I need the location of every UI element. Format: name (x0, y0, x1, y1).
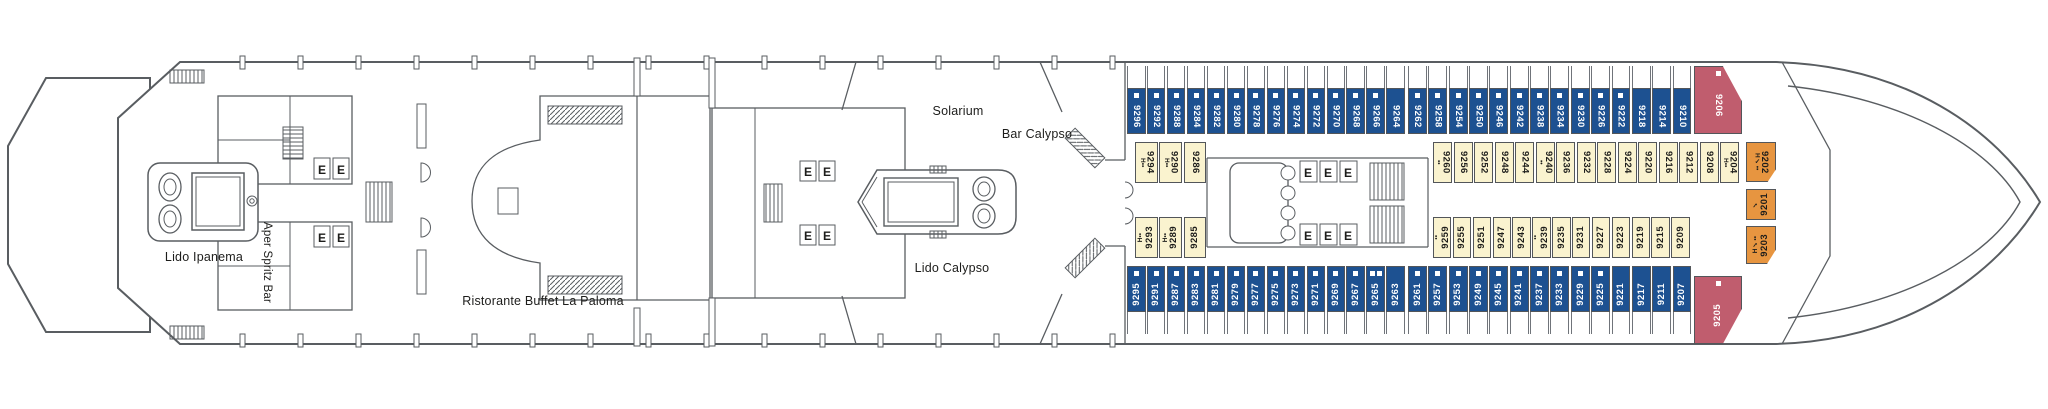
cabin-9243[interactable]: 9243 (1512, 217, 1530, 258)
deck-tick (878, 334, 883, 347)
balcony (1530, 312, 1549, 334)
cabin-number: 9212 (1684, 151, 1694, 174)
buffet-station (498, 188, 518, 214)
wc-lounge (1230, 163, 1288, 243)
label-lido-ipanema: Lido Ipanema (148, 250, 260, 264)
cabin-number: 9256 (1458, 151, 1468, 174)
cabin-9259[interactable]: ••9259 (1433, 217, 1451, 258)
cabin-9226[interactable]: 9226 (1591, 88, 1610, 134)
balcony (1346, 66, 1365, 88)
elevator-icon: E (1344, 229, 1352, 243)
cabin-9256[interactable]: 9256 (1454, 142, 1473, 183)
deck-tick (472, 334, 477, 347)
cabin-number: 9250 (1474, 105, 1484, 128)
deck-tick (588, 334, 593, 347)
wc-stall (1281, 226, 1295, 240)
cabin-9201[interactable]: ✓9201 (1746, 189, 1776, 220)
cabin-9228[interactable]: 9228 (1597, 142, 1616, 183)
cabin-9253[interactable]: 9253 (1449, 266, 1468, 312)
berth-square-icon (1234, 271, 1239, 276)
cabin-9286[interactable]: 9286 (1184, 142, 1207, 183)
balcony (1510, 66, 1529, 88)
wall-stub (709, 58, 715, 108)
deck-tick (878, 56, 883, 69)
deck-tick (530, 56, 535, 69)
cabin-number: 9229 (1576, 283, 1586, 306)
cabin-9230[interactable]: 9230 (1571, 88, 1590, 134)
cabin-number: 9285 (1190, 226, 1200, 249)
balcony (1510, 312, 1529, 334)
balcony (1612, 66, 1631, 88)
cabin-9216[interactable]: 9216 (1659, 142, 1678, 183)
stairs (764, 184, 782, 222)
balcony (1428, 312, 1447, 334)
stairs (1370, 163, 1404, 200)
cabin-number: 9227 (1596, 226, 1606, 249)
cabin-9288[interactable]: 9288 (1167, 88, 1186, 134)
balcony (1408, 312, 1427, 334)
deck-tick (646, 56, 651, 69)
cabin-9238[interactable]: 9238 (1530, 88, 1549, 134)
cabin-9215[interactable]: 9215 (1651, 217, 1669, 258)
cabin-9244[interactable]: 9244 (1515, 142, 1534, 183)
cabin-9223[interactable]: 9223 (1612, 217, 1630, 258)
cabin-9217[interactable]: 9217 (1632, 266, 1651, 312)
cabin-9257[interactable]: 9257 (1428, 266, 1447, 312)
cabin-9264[interactable]: 9264 (1386, 88, 1405, 134)
cabin-number: 9202 (1760, 151, 1770, 174)
elevator-icon: E (318, 231, 326, 245)
stairs (283, 127, 303, 159)
balcony (1591, 312, 1610, 334)
balcony (1550, 312, 1569, 334)
cabin-9271[interactable]: 9271 (1307, 266, 1326, 312)
balcony (1449, 66, 1468, 88)
balcony (1489, 312, 1508, 334)
cabin-9214[interactable]: 9214 (1652, 88, 1671, 134)
cabin-9225[interactable]: 9225 (1591, 266, 1610, 312)
deck-tick (1052, 334, 1057, 347)
cabin-9211[interactable]: 9211 (1652, 266, 1671, 312)
wc-stall (1281, 186, 1295, 200)
cabin-9293[interactable]: H••9293 (1135, 217, 1158, 258)
cabin-number: 9220 (1643, 151, 1653, 174)
cabin-9263[interactable]: 9263 (1386, 266, 1405, 312)
hot-tub (973, 204, 995, 228)
cabin-9276[interactable]: 9276 (1267, 88, 1286, 134)
cabin-number: 9284 (1191, 105, 1201, 128)
deck-tick (994, 334, 999, 347)
cabin-9275[interactable]: 9275 (1267, 266, 1286, 312)
cabin-number: 9211 (1657, 283, 1667, 305)
pool (884, 178, 958, 226)
stairs (170, 326, 204, 339)
balcony (1469, 312, 1488, 334)
berth-square-icon (1333, 271, 1338, 276)
balcony (1207, 66, 1226, 88)
balcony (1366, 312, 1385, 334)
balcony (1287, 312, 1306, 334)
cabin-9284[interactable]: 9284 (1187, 88, 1206, 134)
cabin-9221[interactable]: 9221 (1612, 266, 1631, 312)
cabin-number: 9235 (1557, 226, 1567, 249)
cabin-9204[interactable]: H••9204 (1720, 142, 1739, 183)
cabin-9224[interactable]: 9224 (1618, 142, 1637, 183)
berth-square-icon (1333, 93, 1338, 98)
cabin-9295[interactable]: 9295 (1127, 266, 1146, 312)
cabin-number: 9282 (1211, 105, 1221, 128)
berth-square-icon (1353, 271, 1358, 276)
bench (417, 250, 426, 294)
balcony (1327, 312, 1346, 334)
cabin-number: 9232 (1581, 151, 1591, 174)
cabin-number: 9277 (1251, 283, 1261, 306)
cabin-9210[interactable]: 9210 (1673, 88, 1692, 134)
cabin-number: 9276 (1271, 105, 1281, 128)
cabin-number: 9258 (1433, 105, 1443, 128)
deck-tick (298, 56, 303, 69)
berth-square-icon (1496, 271, 1501, 276)
berth-square-icon (1134, 271, 1139, 276)
cabin-number: 9238 (1535, 105, 1545, 128)
berth-square-icon (1415, 271, 1420, 276)
cabin-9252[interactable]: 9252 (1474, 142, 1493, 183)
deck-tick (588, 56, 593, 69)
cabin-9258[interactable]: 9258 (1428, 88, 1447, 134)
hot-tub (159, 173, 181, 201)
cabin-number: 9248 (1499, 151, 1509, 174)
cabin-9231[interactable]: 9231 (1572, 217, 1590, 258)
balcony (1247, 66, 1266, 88)
balcony (1571, 66, 1590, 88)
pool-step (930, 166, 946, 173)
cabin-9281[interactable]: 9281 (1207, 266, 1226, 312)
cabin-number: 9292 (1151, 105, 1161, 128)
berth-square-icon (1174, 93, 1179, 98)
cabin-number: 9246 (1494, 105, 1504, 128)
cabin-number: 9216 (1663, 151, 1673, 174)
balcony (1147, 312, 1166, 334)
deck-tick (240, 56, 245, 69)
cabin-9249[interactable]: 9249 (1469, 266, 1488, 312)
cabin-9241[interactable]: 9241 (1510, 266, 1529, 312)
cabin-number: 9214 (1657, 105, 1667, 128)
cabin-number: 9222 (1616, 105, 1626, 128)
deck-tick (298, 334, 303, 347)
cabin-9262[interactable]: 9262 (1408, 88, 1427, 134)
wall-stub (634, 58, 640, 96)
balcony (1307, 312, 1326, 334)
cabin-number: 9281 (1211, 283, 1221, 306)
balcony (1187, 312, 1206, 334)
cabin-9239[interactable]: ••9239 (1532, 217, 1550, 258)
cabin-9207[interactable]: 9207 (1673, 266, 1692, 312)
balcony (1127, 66, 1146, 88)
cabin-9219[interactable]: 9219 (1632, 217, 1650, 258)
cabin-number: 9280 (1231, 105, 1241, 128)
cabin-9291[interactable]: 9291 (1147, 266, 1166, 312)
balcony (1408, 66, 1427, 88)
buffet-counter (548, 106, 622, 124)
cabin-9236[interactable]: 9236 (1556, 142, 1575, 183)
berth-square-icon (1517, 271, 1522, 276)
wc-stall (1281, 166, 1295, 180)
cabin-number: 9210 (1677, 105, 1687, 128)
cabin-9235[interactable]: 9235 (1552, 217, 1570, 258)
cabin-number: 9204 (1728, 151, 1738, 174)
cabin-9268[interactable]: 9268 (1346, 88, 1365, 134)
hot-tub (973, 177, 995, 201)
berth-square-icon (1253, 93, 1258, 98)
balcony (1591, 66, 1610, 88)
balcony (1147, 66, 1166, 88)
cabin-number: 9283 (1191, 283, 1201, 306)
label-solarium: Solarium (908, 104, 1008, 118)
cabin-9272[interactable]: 9272 (1307, 88, 1326, 134)
berth-square-icon (1496, 93, 1501, 98)
cabin-number: 9241 (1514, 283, 1524, 306)
cabin-number: 9259 (1441, 226, 1451, 249)
cabin-9227[interactable]: 9227 (1592, 217, 1610, 258)
cabin-number: 9268 (1351, 105, 1361, 128)
elevator-icon: E (804, 165, 812, 179)
balcony (1428, 66, 1447, 88)
cabin-number: 9215 (1656, 226, 1666, 249)
cabin-9212[interactable]: 9212 (1679, 142, 1698, 183)
berth-square-icon (1273, 93, 1278, 98)
cabin-number: 9271 (1311, 283, 1321, 306)
buffet-counter (548, 276, 622, 294)
cabin-9274[interactable]: 9274 (1287, 88, 1306, 134)
balcony (1652, 66, 1671, 88)
cabin-number: 9288 (1171, 105, 1181, 128)
cabin-number: 9293 (1145, 226, 1155, 249)
cabin-number: 9278 (1251, 105, 1261, 128)
berth-square-icon (1415, 93, 1420, 98)
cabin-number: 9236 (1561, 151, 1571, 174)
cabin-9248[interactable]: 9248 (1495, 142, 1514, 183)
deck-tick (356, 56, 361, 69)
stairs (170, 70, 204, 83)
berth-square-icon (1537, 271, 1542, 276)
berth-square-icon (1476, 93, 1481, 98)
deck-tick (240, 334, 245, 347)
cabin-9237[interactable]: 9237 (1530, 266, 1549, 312)
cabin-9292[interactable]: 9292 (1147, 88, 1166, 134)
cabin-9260[interactable]: ••9260 (1433, 142, 1452, 183)
cabin-number: 9274 (1291, 105, 1301, 128)
cabin-number: 9225 (1596, 283, 1606, 306)
balcony (1227, 312, 1246, 334)
balcony (1449, 312, 1468, 334)
berth-square-icon (1517, 93, 1522, 98)
cabin-number: 9255 (1457, 226, 1467, 249)
cabin-number: 9237 (1535, 283, 1545, 306)
cabin-number: 9262 (1413, 105, 1423, 128)
cabin-9285[interactable]: 9285 (1184, 217, 1207, 258)
cabin-9234[interactable]: 9234 (1550, 88, 1569, 134)
cabin-9245[interactable]: 9245 (1489, 266, 1508, 312)
berth-square-icon (1373, 93, 1378, 98)
balcony (1346, 312, 1365, 334)
bench (417, 104, 426, 148)
cabin-9278[interactable]: 9278 (1247, 88, 1266, 134)
cabin-number: 9275 (1271, 283, 1281, 306)
cabin-9290[interactable]: H••9290 (1159, 142, 1182, 183)
elevator-icon: E (337, 163, 345, 177)
berth-square-icon (1234, 93, 1239, 98)
cabin-number: 9294 (1145, 151, 1155, 174)
cabin-9233[interactable]: 9233 (1550, 266, 1569, 312)
cabin-9218[interactable]: 9218 (1632, 88, 1651, 134)
cabin-number: 9234 (1555, 105, 1565, 128)
wall-stub (634, 308, 640, 346)
berth-square-icon (1194, 93, 1199, 98)
label-bar-calypso: Bar Calypso (987, 127, 1087, 141)
balcony (1327, 66, 1346, 88)
cabin-9255[interactable]: 9255 (1453, 217, 1471, 258)
balcony (1227, 66, 1246, 88)
cabin-number: 9205 (1713, 304, 1723, 327)
elevator-icon: E (1344, 166, 1352, 180)
cabin-number: 9207 (1677, 283, 1687, 306)
cabin-9277[interactable]: 9277 (1247, 266, 1266, 312)
berth-square-icon (1313, 93, 1318, 98)
balcony (1247, 312, 1266, 334)
balcony (1267, 312, 1286, 334)
cabin-9220[interactable]: 9220 (1638, 142, 1657, 183)
balcony (1127, 312, 1146, 334)
cabin-number: 9273 (1291, 283, 1301, 306)
berth-square-icon (1194, 271, 1199, 276)
cabin-9283[interactable]: 9283 (1187, 266, 1206, 312)
cabin-number: 9295 (1132, 283, 1142, 306)
berth-square-icon (1578, 271, 1583, 276)
deck-tick (530, 334, 535, 347)
cabin-number: 9228 (1602, 151, 1612, 174)
deck-tick (936, 334, 941, 347)
berth-square-icon (1618, 93, 1623, 98)
cabin-number: 9267 (1351, 283, 1361, 306)
cabin-9282[interactable]: 9282 (1207, 88, 1226, 134)
berth-square-icon (1353, 93, 1358, 98)
berth-square-icon (1557, 271, 1562, 276)
cabin-9209[interactable]: 9209 (1671, 217, 1689, 258)
elevator-icon: E (318, 163, 326, 177)
berth-square-icon (1456, 271, 1461, 276)
cabin-9280[interactable]: 9280 (1227, 88, 1246, 134)
berth-square-icon (1476, 271, 1481, 276)
cabin-number: 9289 (1169, 226, 1179, 249)
cabin-number: 9239 (1540, 226, 1550, 249)
cabin-9222[interactable]: 9222 (1612, 88, 1631, 134)
cabin-9270[interactable]: 9270 (1327, 88, 1346, 134)
cabin-number: 9253 (1453, 283, 1463, 306)
cabin-9265[interactable]: 9265 (1366, 266, 1385, 312)
cabin-number: 9296 (1132, 105, 1142, 128)
deck-tick (646, 334, 651, 347)
cabin-9229[interactable]: 9229 (1571, 266, 1590, 312)
berth-square-icon (1557, 93, 1562, 98)
elevator-icon: E (823, 229, 831, 243)
balcony (1469, 66, 1488, 88)
cabin-9242[interactable]: 9242 (1510, 88, 1529, 134)
cabin-number: 9244 (1520, 151, 1530, 174)
deck-tick (762, 334, 767, 347)
cabin-9267[interactable]: 9267 (1346, 266, 1365, 312)
balcony (1673, 66, 1692, 88)
cabin-number: 9203 (1760, 234, 1770, 257)
cabin-9232[interactable]: 9232 (1577, 142, 1596, 183)
cabin-9269[interactable]: 9269 (1327, 266, 1346, 312)
berth-square-icon (1253, 271, 1258, 276)
deck-linework: E E E E E E (0, 0, 2048, 409)
stairs (366, 182, 392, 222)
cabin-number: 9247 (1497, 226, 1507, 249)
elevator-icon: E (823, 165, 831, 179)
cabin-9246[interactable]: 9246 (1489, 88, 1508, 134)
cabin-number: 9218 (1637, 105, 1647, 128)
cabin-number: 9233 (1555, 283, 1565, 306)
cabin-9287[interactable]: 9287 (1167, 266, 1186, 312)
balcony (1489, 66, 1508, 88)
stairs (1370, 206, 1404, 243)
cabin-number: 9269 (1331, 283, 1341, 306)
cabin-9294[interactable]: H••9294 (1135, 142, 1158, 183)
cabin-number: 9279 (1231, 283, 1241, 306)
cabin-number: 9286 (1190, 151, 1200, 174)
balcony (1652, 312, 1671, 334)
balcony (1167, 312, 1186, 334)
berth-square-icon (1716, 281, 1721, 286)
hot-tub (159, 205, 181, 233)
balcony (1632, 66, 1651, 88)
deck-tick (472, 56, 477, 69)
deck-tick (994, 56, 999, 69)
elevator-icon: E (1304, 166, 1312, 180)
cabin-number: 9251 (1477, 226, 1487, 249)
cabin-number: 9208 (1704, 151, 1714, 174)
cabin-9240[interactable]: ••9240 (1536, 142, 1555, 183)
cabin-9250[interactable]: 9250 (1469, 88, 1488, 134)
cabin-number: 9257 (1433, 283, 1443, 306)
berth-square-icon (1134, 93, 1139, 98)
cabin-number: 9264 (1391, 105, 1401, 128)
cabin-9254[interactable]: 9254 (1449, 88, 1468, 134)
berth-square-icon (1154, 271, 1159, 276)
berth-square-icon (1377, 271, 1382, 276)
cabin-number: 9242 (1514, 105, 1524, 128)
cabin-number: 9254 (1453, 105, 1463, 128)
cabin-9273[interactable]: 9273 (1287, 266, 1306, 312)
cabin-9289[interactable]: H••9289 (1159, 217, 1182, 258)
balcony (1571, 312, 1590, 334)
deck-tick (1110, 334, 1115, 347)
cabin-9208[interactable]: 9208 (1700, 142, 1719, 183)
cabin-9202[interactable]: H✓••9202 (1746, 142, 1776, 182)
cabin-9296[interactable]: 9296 (1127, 88, 1146, 134)
deck-tick (820, 334, 825, 347)
cabin-9261[interactable]: 9261 (1408, 266, 1427, 312)
label-ristorante-buffet: Ristorante Buffet La Paloma (443, 294, 643, 308)
cabin-9279[interactable]: 9279 (1227, 266, 1246, 312)
balcony (1307, 66, 1326, 88)
cabin-9266[interactable]: 9266 (1366, 88, 1385, 134)
cabin-number: 9265 (1371, 283, 1381, 306)
cabin-9247[interactable]: 9247 (1493, 217, 1511, 258)
balcony (1612, 312, 1631, 334)
cabin-9251[interactable]: 9251 (1473, 217, 1491, 258)
